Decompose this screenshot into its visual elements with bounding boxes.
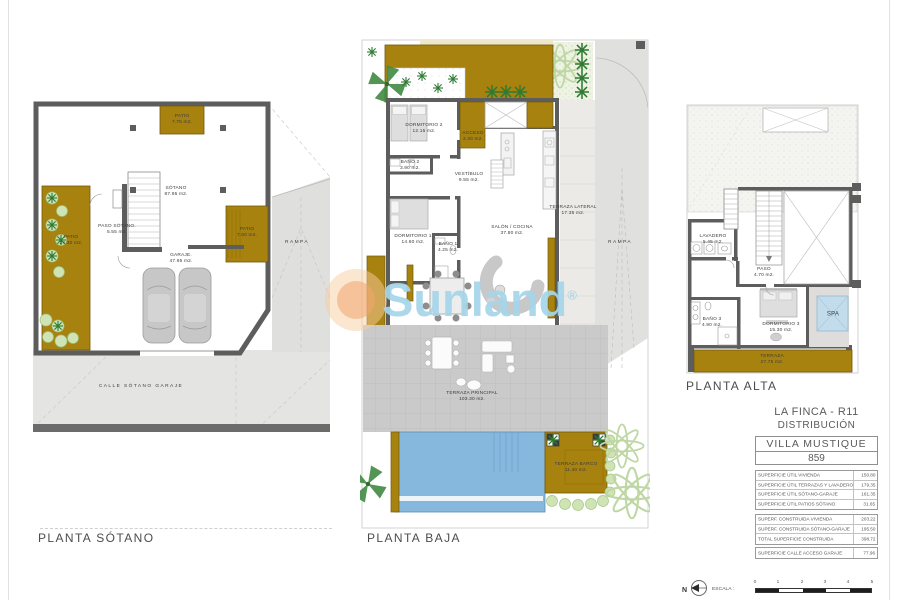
scale-segment (756, 589, 779, 592)
sotano-plan-svg (28, 98, 333, 443)
garage-door-opening (140, 347, 214, 356)
pool (391, 432, 545, 512)
double-height-void (784, 191, 849, 284)
alta-stairs (756, 191, 782, 265)
row-value-cell: 179.35 (853, 481, 877, 490)
row-value: 161.35 (861, 492, 875, 497)
scale-segment (850, 589, 871, 592)
planter-1 (547, 434, 559, 446)
patio-right-area (226, 206, 268, 262)
row-value: 398.72 (861, 536, 875, 541)
row-value-cell: 150.80 (853, 471, 877, 480)
row-value-cell: 203.22 (853, 515, 877, 524)
top-boundary-strip (420, 40, 553, 45)
row-value-cell: 195.50 (853, 525, 877, 534)
patio-top-area (160, 106, 204, 134)
scale-tick: 3 (824, 579, 827, 584)
scale-tick: 2 (801, 579, 804, 584)
row-value-cell: 31.65 (853, 500, 877, 510)
row-label: SUPERFICIE CALLE ACCESO GARAJE (758, 550, 842, 555)
table-row: SUPERFICIE ÚTIL SÓTANO-GARAJE161.35 (756, 490, 877, 500)
row-label: SUPERFICIE ÚTIL SÓTANO-GARAJE (758, 492, 838, 497)
surface-table-construida: SUPERF. CONSTRUIDA VIVIENDA203.22 SUPERF… (755, 514, 878, 545)
terraza-barco-area (545, 432, 607, 493)
lavadero-fixtures (691, 242, 731, 254)
table-row: SUPERF. CONSTRUIDA VIVIENDA203.22 (756, 515, 877, 525)
kitchen-north-gold-band (527, 102, 553, 128)
scale-tick: 5 (871, 579, 874, 584)
baja-stairs (491, 160, 503, 188)
car-1 (143, 268, 175, 343)
table-row: SUPERF. CONSTRUIDA SÓTANO-GARAJE195.50 (756, 525, 877, 535)
surface-table-util: SUPERFICIE ÚTIL VIVIENDA150.80 SUPERFICI… (755, 470, 878, 510)
scale-segment (779, 589, 802, 592)
sotano-rampa-area (268, 104, 330, 352)
north-arrow-icon (689, 578, 709, 598)
sheet-left-border (8, 0, 9, 600)
sheet-right-border (889, 0, 890, 600)
dormitorio1-bed (390, 199, 428, 229)
spa-area (809, 287, 849, 347)
row-label: SUPERF. CONSTRUIDA VIVIENDA (758, 517, 832, 522)
row-value-cell: 161.35 (853, 490, 877, 499)
baja-plan-svg (360, 38, 650, 530)
row-value: 31.65 (863, 502, 875, 507)
surface-table-acceso: SUPERFICIE CALLE ACCESO GARAJE77.96 (755, 547, 878, 559)
alta-plan-svg (680, 95, 880, 385)
calle-sotano-garaje-area (33, 350, 330, 432)
row-label: SUPERFICIE ÚTIL VIVIENDA (758, 473, 820, 478)
floorplan-sheet: SÓTANO87.95 m2. PASO SÓTANO.5.55 m2. GAR… (0, 0, 900, 600)
scale-label: ESCALA : (712, 586, 734, 592)
table-row: SUPERFICIE ÚTIL PATIOS SÓTANO31.65 (756, 500, 877, 510)
scale-tick: 1 (777, 579, 780, 584)
project-title: LA FINCA - R11 (755, 406, 878, 418)
alta-plan-title: PLANTA ALTA (686, 379, 777, 393)
villa-number-box: 859 (755, 451, 878, 465)
scale-tick: 4 (847, 579, 850, 584)
garage-wall (188, 245, 244, 249)
baja-plan-title: PLANTA BAJA (367, 531, 461, 545)
row-value: 179.35 (861, 482, 875, 487)
car-2 (179, 268, 211, 343)
scale-segment (826, 589, 849, 592)
plot-boundary-dashed-line (40, 528, 332, 529)
acceso-area (460, 102, 485, 148)
row-value: 195.50 (861, 526, 875, 531)
entrance-canopy (485, 102, 527, 128)
row-label: SUPERFICIE ÚTIL PATIOS SÓTANO (758, 502, 835, 507)
row-value-cell: 398.72 (853, 534, 877, 544)
alta-terraza-area (694, 350, 852, 372)
project-subtitle: DISTRIBUCIÓN (755, 420, 878, 431)
row-value: 203.22 (861, 517, 875, 522)
dining-table (423, 271, 472, 322)
skylight (763, 108, 828, 132)
sotano-plan-title: PLANTA SÓTANO (38, 531, 154, 545)
row-value: 77.96 (863, 550, 875, 555)
scale-bar (755, 588, 872, 593)
scale-north-block: N ESCALA : 0 1 2 3 4 5 (680, 577, 892, 599)
baja-rampa-area (595, 40, 648, 372)
table-row: TOTAL SUPERFICIE CONSTRUIDA398.72 (756, 534, 877, 544)
north-letter: N (682, 587, 687, 594)
scale-segment (803, 589, 826, 592)
row-label: SUPERFICIE ÚTIL TERRAZAS Y LAVADERO (758, 482, 853, 487)
table-row: SUPERFICIE CALLE ACCESO GARAJE77.96 (756, 548, 877, 558)
row-value: 150.80 (861, 473, 875, 478)
table-row: SUPERFICIE ÚTIL TERRAZAS Y LAVADERO179.3… (756, 481, 877, 491)
alta-stair-strip (724, 189, 738, 229)
row-value-cell: 77.96 (853, 548, 877, 558)
table-row: SUPERFICIE ÚTIL VIVIENDA150.80 (756, 471, 877, 481)
scale-tick: 0 (754, 579, 757, 584)
row-label: SUPERF. CONSTRUIDA SÓTANO-GARAJE (758, 526, 850, 531)
row-label: TOTAL SUPERFICIE CONSTRUIDA (758, 536, 833, 541)
villa-name-box: VILLA MUSTIQUE (755, 436, 878, 452)
